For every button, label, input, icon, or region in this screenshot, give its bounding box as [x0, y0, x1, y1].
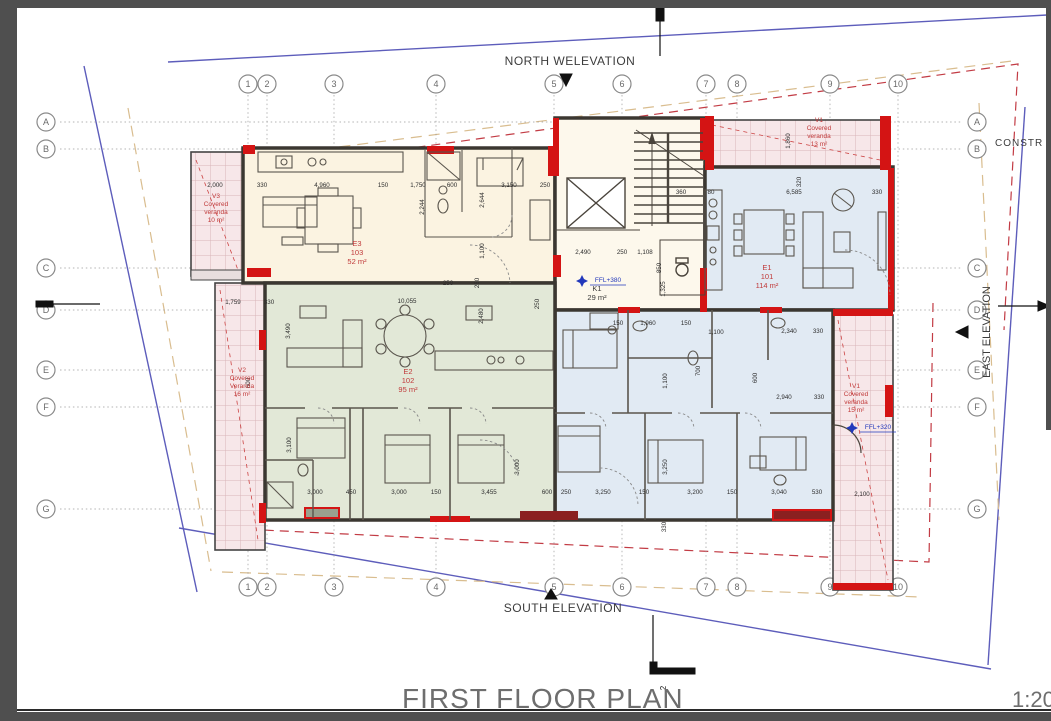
dimension-label: 330: [814, 394, 825, 401]
dimension-label: 360: [676, 189, 687, 196]
grid-bubble-label: A: [974, 117, 980, 127]
dimension-label: 330: [257, 182, 268, 189]
grid-bubble-label: 6: [619, 582, 624, 592]
dimension-label: 600: [752, 372, 759, 383]
dimension-label: 2,244: [419, 199, 426, 215]
dimension-label: 330: [661, 521, 668, 532]
dimension-label: 1,325: [660, 281, 667, 297]
grid-bubble-label: 1: [245, 582, 250, 592]
dimension-label: 1,100: [479, 243, 486, 259]
grid-bubble-label: 3: [331, 79, 336, 89]
dimension-label: 2,490: [575, 249, 591, 256]
dimension-label: 4,960: [314, 182, 330, 189]
dimension-label: 3,100: [286, 437, 293, 453]
grid-bubble-label: G: [42, 504, 49, 514]
dimension-label: 3,150: [501, 182, 517, 189]
dimension-label: 250: [534, 298, 541, 309]
dimension-label: 3,200: [687, 489, 703, 496]
sheet-frame-left: [0, 0, 17, 721]
dimension-label: 850: [656, 262, 663, 273]
dimension-label: 2,000: [207, 182, 223, 189]
north-elevation-label: NORTH WELEVATION: [455, 54, 685, 68]
dimension-label: 3,250: [595, 489, 611, 496]
dimension-label: 320: [796, 176, 803, 187]
dimension-label: 2,940: [776, 394, 792, 401]
dimension-label: 3,000: [391, 489, 407, 496]
grid-bubble-label: C: [43, 263, 50, 273]
dimension-label: 330: [264, 299, 275, 306]
grid-bubble-label: E: [43, 365, 49, 375]
grid-bubble-label: 5: [551, 79, 556, 89]
dimension-label: 150: [378, 182, 389, 189]
dimension-label: 250: [474, 277, 481, 288]
grid-bubble-label: C: [974, 263, 981, 273]
grid-bubble-label: B: [974, 144, 980, 154]
drawing-sheet: 1122334455667788991010AABBCCDDEEFFGG: [0, 0, 1051, 721]
dimension-label: 1,108: [637, 249, 653, 256]
dimension-label: 150: [639, 489, 650, 496]
dimension-label: 330: [813, 328, 824, 335]
grid-bubble-label: 1: [245, 79, 250, 89]
grid-bubble-label: G: [973, 504, 980, 514]
dimension-label: 3,250: [662, 459, 669, 475]
grid-bubble-label: 9: [827, 582, 832, 592]
south-elevation-label: SOUTH ELEVATION: [448, 601, 678, 615]
ffl-label: FFL+380: [595, 277, 622, 284]
grid-bubble-label: E: [974, 365, 980, 375]
dimension-label: 600: [542, 489, 553, 496]
dimension-label: 3,455: [481, 489, 497, 496]
dimension-label: 3,490: [285, 323, 292, 339]
grid-bubble-label: B: [43, 144, 49, 154]
grid-bubble-label: 8: [734, 79, 739, 89]
grid-bubble-label: 10: [893, 79, 903, 89]
grid-bubble-label: A: [43, 117, 49, 127]
titleblock-line: [17, 709, 1051, 711]
grid-bubble-label: 10: [893, 582, 903, 592]
grid-bubble-label: 2: [264, 79, 269, 89]
east-elevation-label: EAST ELEVATION: [981, 286, 993, 378]
dimension-label: 250: [540, 182, 551, 189]
grid-bubble-label: D: [974, 305, 981, 315]
dimension-label: 3,000: [307, 489, 323, 496]
dimension-label: 2,100: [854, 491, 870, 498]
dimension-label: 450: [346, 489, 357, 496]
dimension-label: 1,750: [410, 182, 426, 189]
grid-bubble-label: 7: [703, 79, 708, 89]
grid-bubble-label: 8: [734, 582, 739, 592]
dimension-label: 10,055: [398, 298, 417, 305]
grid-bubble-label: 4: [433, 79, 438, 89]
dimension-label: 1,860: [785, 133, 792, 149]
constr-label: CONSTR: [995, 138, 1043, 149]
dimension-label: 250: [561, 489, 572, 496]
sheet-frame-bottom: [0, 712, 1051, 721]
dimension-label: 2,340: [781, 328, 797, 335]
dimension-label: 150: [681, 320, 692, 327]
grid-bubble-label: F: [43, 402, 49, 412]
dimension-label: 1,100: [708, 329, 724, 336]
dimension-label: 250: [443, 280, 454, 287]
dimension-label: 150: [727, 489, 738, 496]
dimension-label: 1,100: [662, 373, 669, 389]
grid-bubble-label: 6: [619, 79, 624, 89]
dimension-label: 530: [812, 489, 823, 496]
dimension-label: 3,040: [771, 489, 787, 496]
dimension-label: 1,960: [640, 320, 656, 327]
dimension-label: 700: [695, 365, 702, 376]
east-arrow-icon: [956, 326, 968, 338]
dimension-label: 2,480: [478, 308, 485, 324]
dimension-label: 150: [613, 320, 624, 327]
dimension-label: 330: [872, 189, 883, 196]
dimension-label: 3,000: [514, 459, 521, 475]
grid-bubble-label: 7: [703, 582, 708, 592]
ffl-label: FFL+320: [865, 424, 892, 431]
dimension-label: 150: [431, 489, 442, 496]
grid-bubble-label: 3: [331, 582, 336, 592]
dimension-label: 1,759: [225, 299, 241, 306]
grid-bubble-label: 9: [827, 79, 832, 89]
dimension-label: 80: [708, 189, 715, 196]
grid-bubble-label: 4: [433, 582, 438, 592]
dimension-label: 600: [447, 182, 458, 189]
sheet-frame-right: [1046, 0, 1051, 430]
dimension-label: 2,644: [479, 192, 486, 208]
grid-bubble-label: 2: [264, 582, 269, 592]
dimension-label: 6,585: [786, 189, 802, 196]
dimension-label: 250: [617, 249, 628, 256]
sheet-frame-top: [0, 0, 1051, 8]
grid-bubble-label: F: [974, 402, 980, 412]
